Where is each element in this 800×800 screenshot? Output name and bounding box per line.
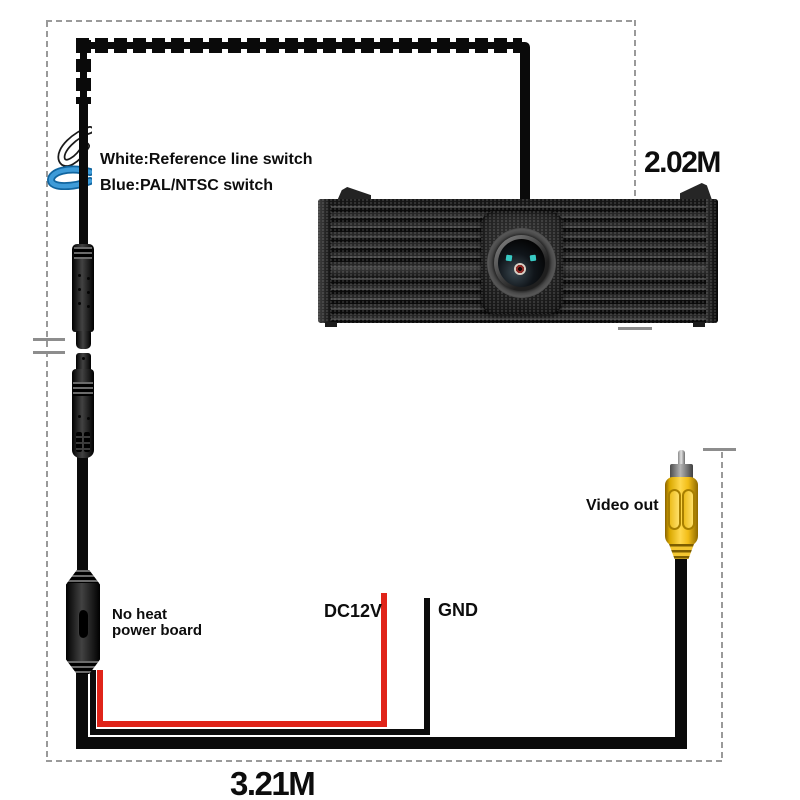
camera-mount-tab-right [680, 183, 712, 200]
lens-center-dot [514, 263, 526, 275]
female-connector-stub [76, 353, 91, 370]
rca-connector-body [665, 477, 698, 546]
dashed-line-camera-measure [634, 20, 636, 196]
male-connector-tip [76, 331, 91, 349]
switch-white-label: White:Reference line switch [100, 151, 313, 169]
power-board-slot [78, 610, 88, 638]
female-connector-ribs [73, 382, 93, 396]
power-board [66, 570, 100, 674]
power-board-ribs-top [66, 570, 100, 583]
dashed-line-video-measure [721, 452, 723, 760]
left-cable-lower [77, 455, 88, 573]
female-connector-vent-left [76, 432, 82, 452]
male-connector [72, 244, 94, 332]
dashed-line-top [46, 20, 636, 22]
main-cable-horizontal [76, 737, 687, 749]
black-wire-gnd [424, 598, 430, 735]
break-mark-lower [33, 351, 65, 354]
female-connector-stub-dot [82, 357, 85, 360]
power-board-label-line1: No heat [112, 607, 202, 623]
lens-reflection-dot-right [530, 255, 537, 262]
female-connector-dots [78, 415, 81, 418]
measure-tick-camera [618, 327, 652, 330]
measure-tick-video [703, 448, 736, 451]
male-connector-dots [78, 274, 81, 277]
total-cable-length-label: 3.21M [230, 765, 314, 800]
corrugated-cable-left [76, 40, 91, 104]
black-wire-horizontal [90, 729, 430, 735]
main-cable-vertical-right [675, 556, 687, 749]
dc12v-label: DC12V [324, 601, 382, 622]
rca-strain-relief [669, 544, 694, 559]
rca-body-groove-left [668, 489, 681, 530]
camera-unit [318, 183, 718, 327]
corrugated-cable-top [76, 38, 522, 53]
camera-foot-left [325, 322, 337, 327]
camera-foot-right [693, 322, 705, 327]
power-board-label: No heat power board [112, 607, 202, 639]
rca-body-groove-right [682, 489, 695, 530]
switch-blue-label: Blue:PAL/NTSC switch [100, 177, 273, 195]
left-cable-upper [79, 103, 88, 246]
red-wire-vertical-left [97, 670, 103, 727]
red-wire-horizontal [97, 721, 387, 727]
female-connector [72, 369, 94, 458]
female-connector-vent-right [84, 432, 90, 452]
lens-reflection-dot-left [506, 255, 513, 262]
gnd-label: GND [438, 600, 478, 621]
video-out-label: Video out [586, 497, 659, 515]
male-connector-ribs [74, 247, 92, 259]
camera-module [481, 211, 563, 314]
break-mark-upper [33, 338, 65, 341]
power-board-label-line2: power board [112, 623, 202, 639]
black-wire-vertical-left [90, 670, 96, 735]
dashed-line-bottom [46, 760, 723, 762]
camera-cable-length-label: 2.02M [644, 146, 720, 180]
camera-wiring-diagram: White:Reference line switch Blue:PAL/NTS… [0, 0, 800, 800]
